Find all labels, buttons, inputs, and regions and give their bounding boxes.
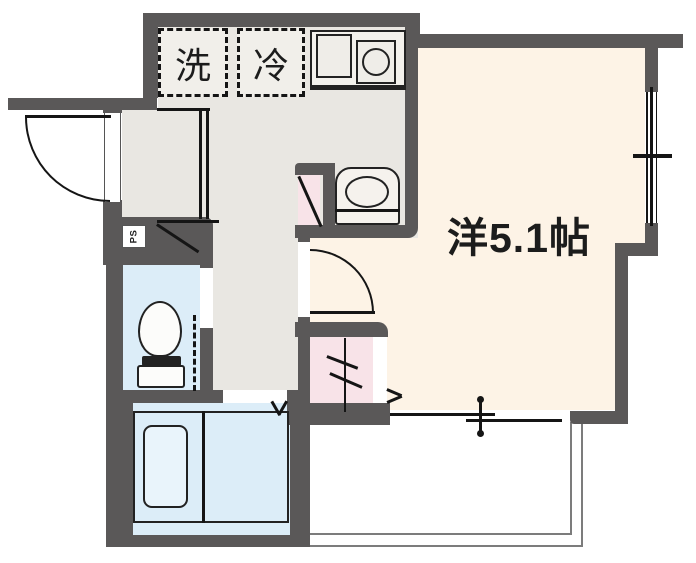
- main-room-door-leaf: [310, 311, 375, 314]
- fridge-space-label: 冷: [253, 37, 289, 89]
- shoe-cabinet-top-line: [157, 220, 219, 223]
- entrance-step-line: [206, 109, 209, 219]
- kitchen-sink-icon: [316, 34, 352, 78]
- wall: [143, 13, 420, 27]
- right-window-pane-line: [646, 92, 648, 223]
- stove-burner-icon: [362, 48, 390, 76]
- sliding-window-cross-dot: [477, 430, 484, 437]
- wall: [570, 411, 628, 424]
- pipe-space-box: PS: [122, 225, 146, 248]
- main-room-label: 洋5.1帖: [447, 204, 591, 264]
- closet-doorway: [373, 337, 387, 403]
- wall: [106, 403, 133, 547]
- main-room-doorway: [298, 242, 310, 317]
- vanity-base-line: [335, 209, 400, 212]
- vanity-basin-icon: [345, 176, 389, 208]
- right-window-pane-line: [656, 92, 658, 223]
- toilet-partition-dashed-line: [193, 315, 196, 391]
- balcony-parapet-line: [303, 422, 572, 535]
- entrance-step-line: [157, 108, 210, 111]
- floorplan: 洗 冷 PS: [0, 0, 696, 563]
- wall: [287, 403, 390, 425]
- hanger-pipe-icon: [344, 338, 347, 412]
- wall: [106, 390, 223, 403]
- bath-divider-line: [202, 411, 205, 523]
- toilet-doorway: [200, 268, 213, 328]
- corridor-floor: [213, 238, 300, 403]
- wall: [8, 98, 157, 110]
- wall: [200, 326, 213, 391]
- washer-space: 洗: [158, 28, 228, 97]
- wall: [295, 322, 388, 337]
- wall: [106, 265, 123, 391]
- wall: [413, 34, 683, 48]
- toilet-bowl-icon: [138, 301, 182, 357]
- sliding-window-cross-line: [479, 398, 482, 434]
- fridge-space: 冷: [237, 28, 305, 97]
- toilet-tank-icon: [137, 365, 185, 388]
- wall: [200, 252, 213, 269]
- sliding-window-cross-dot: [477, 396, 484, 403]
- wall: [615, 243, 628, 423]
- entrance-door-arc: [25, 117, 110, 202]
- wall: [405, 27, 418, 226]
- right-window-cross-bar: [633, 154, 672, 158]
- bathroom-doorway: [223, 390, 287, 403]
- wall: [298, 337, 310, 413]
- wall: [103, 98, 122, 113]
- pipe-space-label: PS: [129, 230, 140, 244]
- wall: [295, 163, 335, 175]
- entrance-step-line: [199, 109, 202, 219]
- wall: [645, 48, 658, 92]
- wall: [103, 200, 122, 218]
- bathtub-icon: [143, 425, 188, 508]
- entrance-door-leaf: [25, 115, 111, 118]
- wall: [106, 535, 303, 547]
- wall: [295, 225, 418, 238]
- wall: [323, 175, 335, 227]
- wall: [143, 13, 158, 98]
- washer-space-label: 洗: [175, 37, 211, 89]
